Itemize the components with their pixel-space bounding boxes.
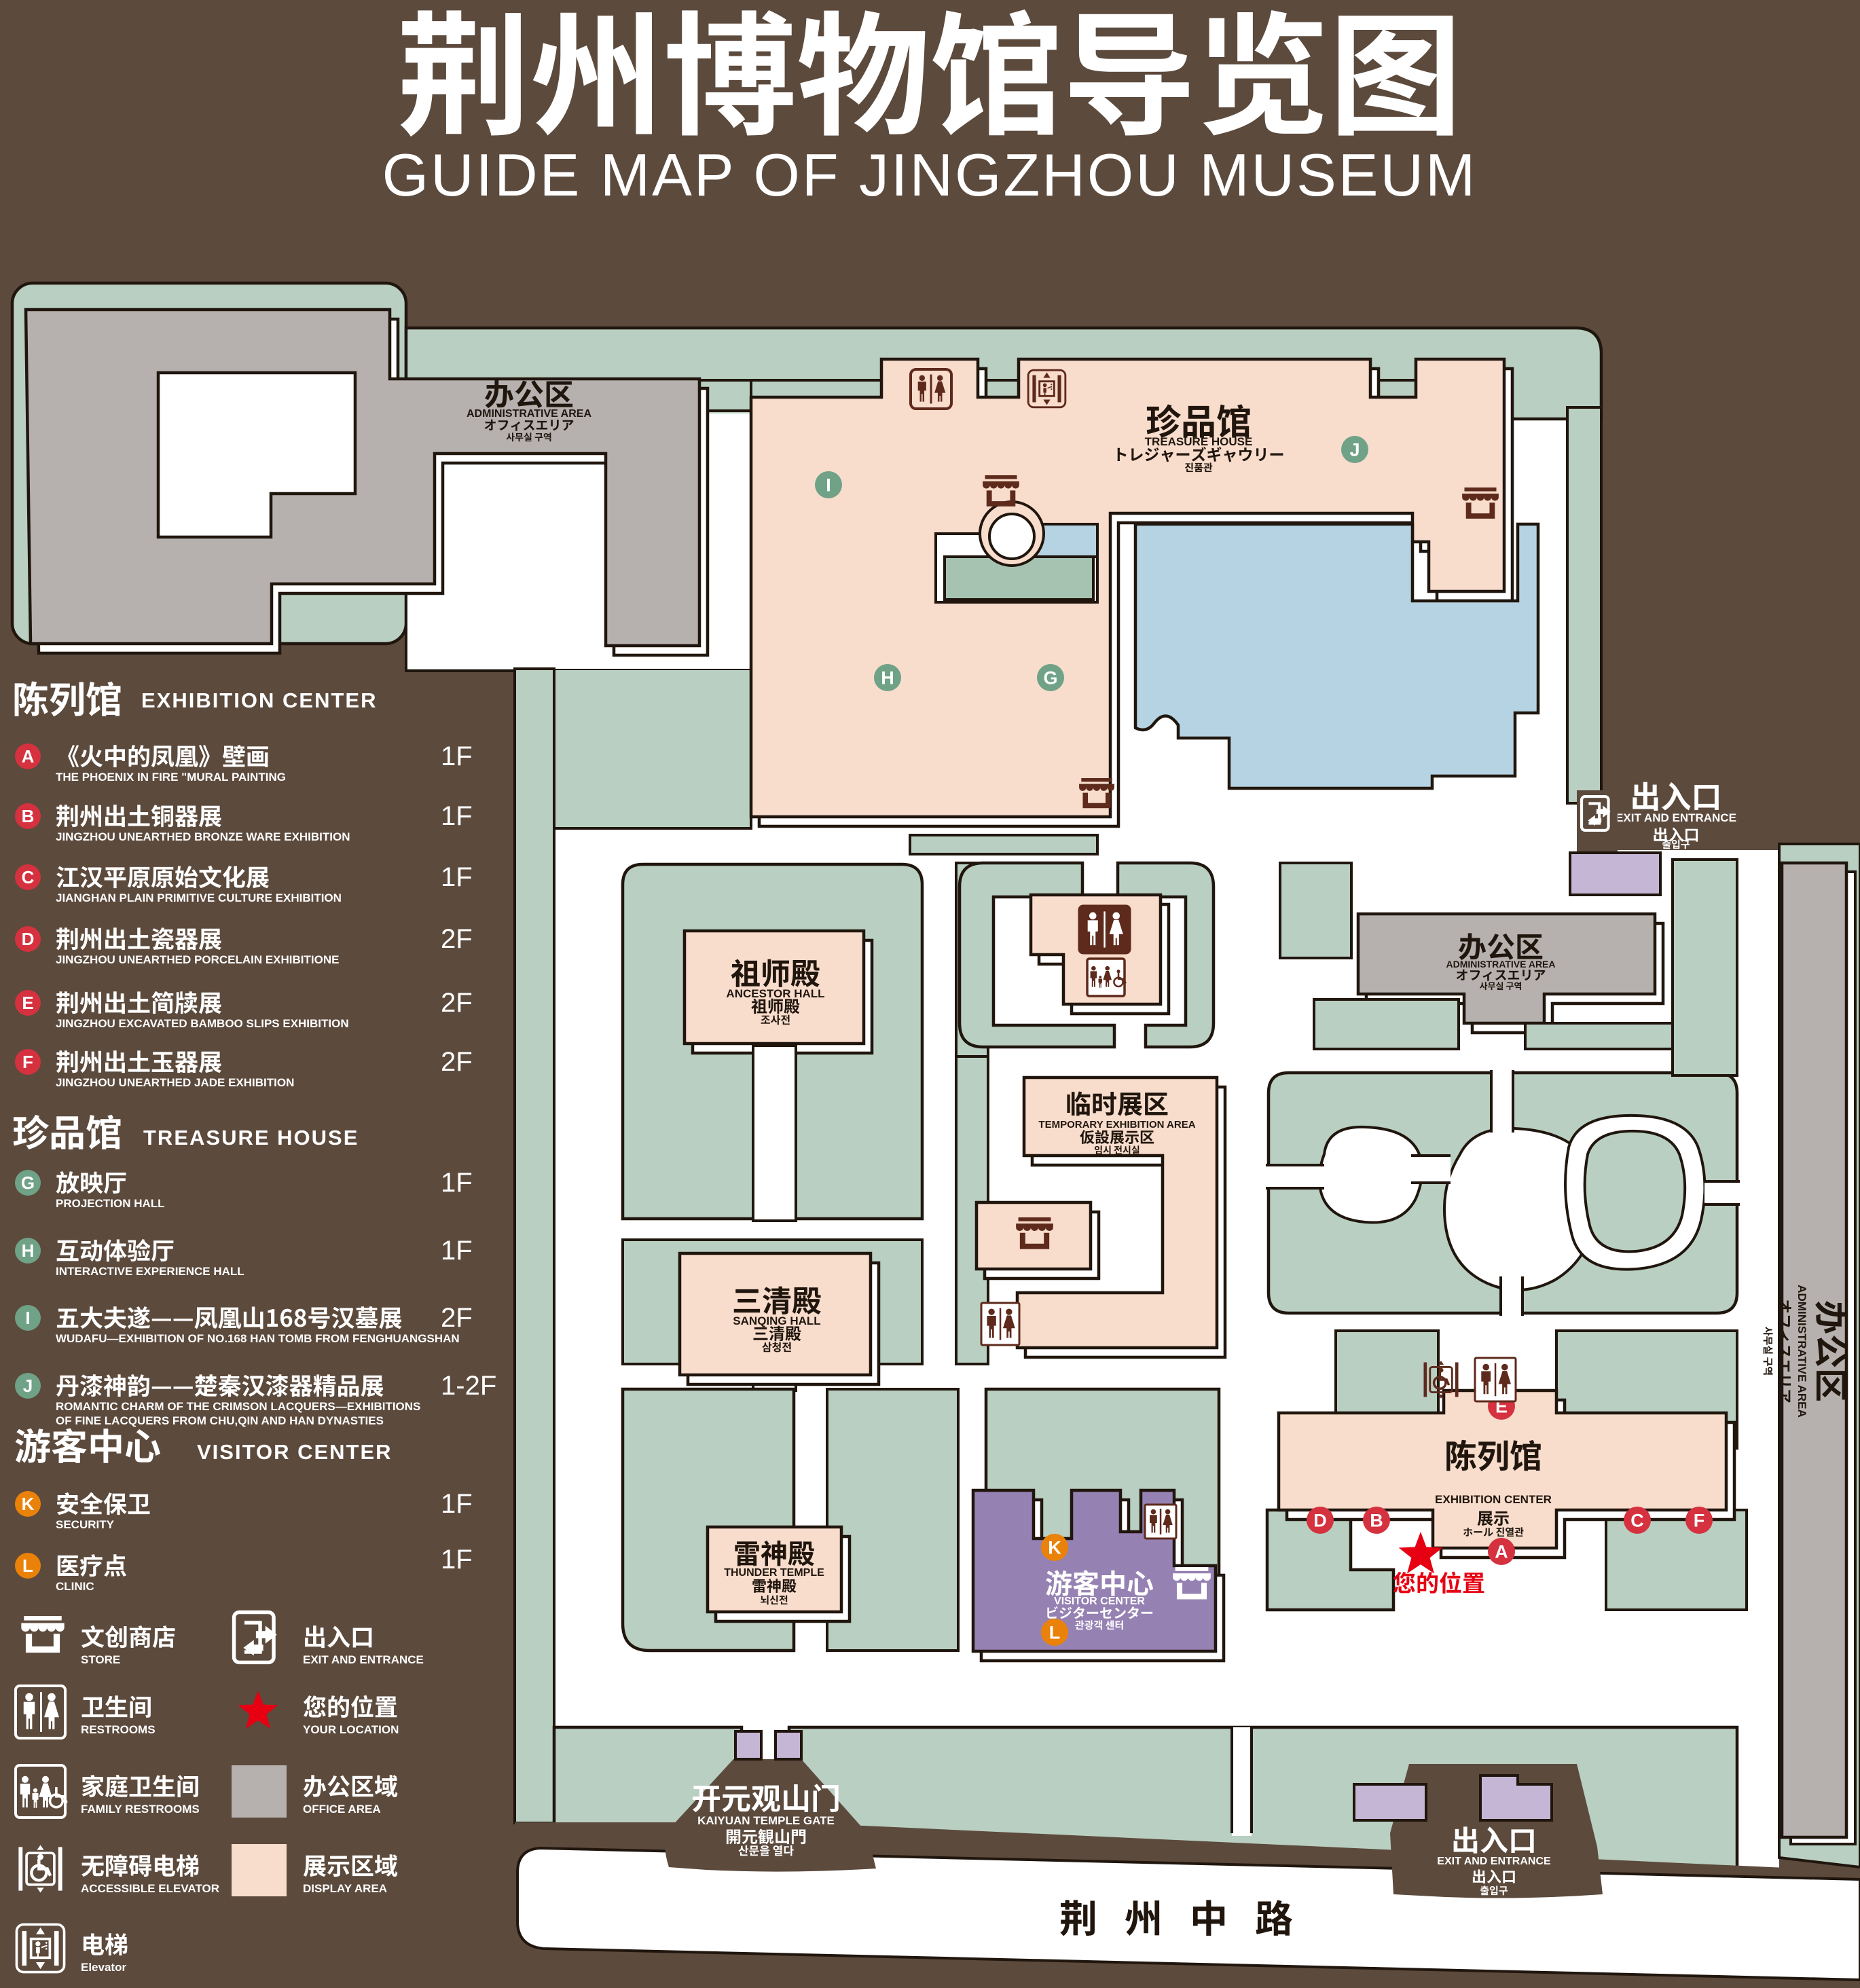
svg-text:1F: 1F	[441, 801, 473, 831]
svg-text:WUDAFU—EXHIBITION OF NO.168 HA: WUDAFU—EXHIBITION OF NO.168 HAN TOMB FRO…	[56, 1332, 460, 1345]
svg-text:D: D	[22, 929, 35, 949]
svg-text:JINGZHOU UNEARTHED JADE EXHIBI: JINGZHOU UNEARTHED JADE EXHIBITION	[56, 1076, 294, 1089]
svg-text:C: C	[1630, 1510, 1644, 1530]
svg-text:A: A	[22, 746, 35, 767]
svg-text:1F: 1F	[441, 1236, 473, 1266]
svg-text:EXIT AND ENTRANCE: EXIT AND ENTRANCE	[1437, 1856, 1551, 1867]
svg-text:G: G	[1043, 667, 1057, 688]
svg-text:JINGZHOU EXCAVATED BAMBOO SLIP: JINGZHOU EXCAVATED BAMBOO SLIPS EXHIBITI…	[56, 1017, 349, 1030]
svg-text:H: H	[881, 667, 894, 688]
svg-text:THUNDER TEMPLE: THUNDER TEMPLE	[724, 1567, 824, 1579]
svg-text:ANCESTOR HALL: ANCESTOR HALL	[726, 987, 824, 1000]
svg-text:L: L	[22, 1556, 33, 1576]
svg-text:JIANGHAN PLAIN PRIMITIVE CULTU: JIANGHAN PLAIN PRIMITIVE CULTURE EXHIBIT…	[56, 891, 342, 904]
svg-text:DISPLAY AREA: DISPLAY AREA	[303, 1882, 387, 1895]
svg-text:CLINIC: CLINIC	[56, 1580, 94, 1593]
svg-text:1F: 1F	[441, 862, 473, 892]
svg-text:ADMINISTRATIVE AREA: ADMINISTRATIVE AREA	[1446, 959, 1556, 970]
svg-text:OFFICE AREA: OFFICE AREA	[303, 1803, 381, 1816]
svg-text:STORE: STORE	[81, 1653, 120, 1666]
svg-text:FAMILY RESTROOMS: FAMILY RESTROOMS	[81, 1803, 200, 1816]
svg-text:THE PHOENIX IN FIRE "MURAL PAI: THE PHOENIX IN FIRE "MURAL PAINTING	[56, 771, 286, 784]
svg-text:B: B	[22, 806, 35, 826]
svg-text:SECURITY: SECURITY	[56, 1518, 115, 1531]
svg-text:ADMINISTRATIVE AREA: ADMINISTRATIVE AREA	[467, 408, 591, 420]
svg-text:C: C	[22, 867, 35, 887]
svg-text:TREASURE HOUSE: TREASURE HOUSE	[1145, 435, 1253, 448]
svg-text:2F: 2F	[441, 1047, 473, 1077]
svg-text:EXIT AND ENTRANCE: EXIT AND ENTRANCE	[1616, 811, 1736, 824]
svg-text:F: F	[1694, 1510, 1705, 1530]
svg-text:H: H	[22, 1240, 35, 1261]
svg-text:VISITOR CENTER: VISITOR CENTER	[197, 1440, 393, 1464]
svg-text:2F: 2F	[441, 1303, 473, 1333]
svg-text:SANQING HALL: SANQING HALL	[733, 1314, 820, 1327]
svg-text:E: E	[22, 993, 33, 1013]
svg-text:J: J	[23, 1376, 33, 1396]
svg-text:K: K	[1048, 1537, 1061, 1558]
svg-text:1-2F: 1-2F	[441, 1371, 496, 1401]
svg-text:PROJECTION HALL: PROJECTION HALL	[56, 1197, 165, 1210]
svg-text:TREASURE HOUSE: TREASURE HOUSE	[143, 1126, 359, 1149]
svg-text:KAIYUAN TEMPLE GATE: KAIYUAN TEMPLE GATE	[697, 1814, 835, 1827]
svg-text:J: J	[1349, 439, 1360, 460]
svg-text:1F: 1F	[441, 741, 473, 771]
svg-text:L: L	[1049, 1622, 1061, 1642]
svg-text:YOUR LOCATION: YOUR LOCATION	[303, 1723, 399, 1736]
svg-text:I: I	[826, 475, 831, 495]
svg-text:ACCESSIBLE ELEVATOR: ACCESSIBLE ELEVATOR	[81, 1882, 219, 1895]
svg-text:VISITOR CENTER: VISITOR CENTER	[1054, 1596, 1145, 1607]
svg-text:1F: 1F	[441, 1168, 473, 1198]
svg-text:JINGZHOU UNEARTHED PORCELAIN E: JINGZHOU UNEARTHED PORCELAIN EXHIBITIONE	[56, 953, 339, 966]
svg-text:ADMINISTRATIVE AREA: ADMINISTRATIVE AREA	[1795, 1285, 1808, 1418]
svg-text:OF FINE LACQUERS FROM CHU,QIN: OF FINE LACQUERS FROM CHU,QIN AND HAN DY…	[56, 1414, 384, 1427]
svg-text:1F: 1F	[441, 1545, 473, 1575]
svg-text:ROMANTIC CHARM OF THE CRIMSON: ROMANTIC CHARM OF THE CRIMSON LACQUERS—E…	[56, 1400, 420, 1413]
svg-text:D: D	[1313, 1510, 1327, 1530]
svg-text:INTERACTIVE EXPERIENCE HALL: INTERACTIVE EXPERIENCE HALL	[56, 1265, 244, 1278]
svg-text:I: I	[25, 1308, 30, 1328]
svg-text:2F: 2F	[441, 988, 473, 1018]
svg-text:RESTROOMS: RESTROOMS	[81, 1723, 156, 1736]
svg-text:EXIT AND ENTRANCE: EXIT AND ENTRANCE	[303, 1653, 424, 1666]
svg-text:EXHIBITION CENTER: EXHIBITION CENTER	[1435, 1493, 1552, 1506]
svg-text:EXHIBITION CENTER: EXHIBITION CENTER	[141, 688, 377, 712]
svg-text:GUIDE MAP OF JINGZHOU MUSEUM: GUIDE MAP OF JINGZHOU MUSEUM	[382, 141, 1478, 208]
svg-text:B: B	[1370, 1510, 1383, 1530]
svg-text:1F: 1F	[441, 1489, 473, 1519]
svg-text:K: K	[22, 1494, 35, 1514]
svg-text:G: G	[21, 1173, 35, 1193]
svg-text:2F: 2F	[441, 924, 473, 954]
svg-text:F: F	[22, 1052, 33, 1072]
svg-text:Elevator: Elevator	[81, 1961, 126, 1974]
svg-text:A: A	[1495, 1541, 1508, 1562]
svg-text:TEMPORARY EXHIBITION AREA: TEMPORARY EXHIBITION AREA	[1038, 1119, 1195, 1130]
svg-text:JINGZHOU UNEARTHED BRONZE WARE: JINGZHOU UNEARTHED BRONZE WARE EXHIBITIO…	[56, 830, 350, 843]
